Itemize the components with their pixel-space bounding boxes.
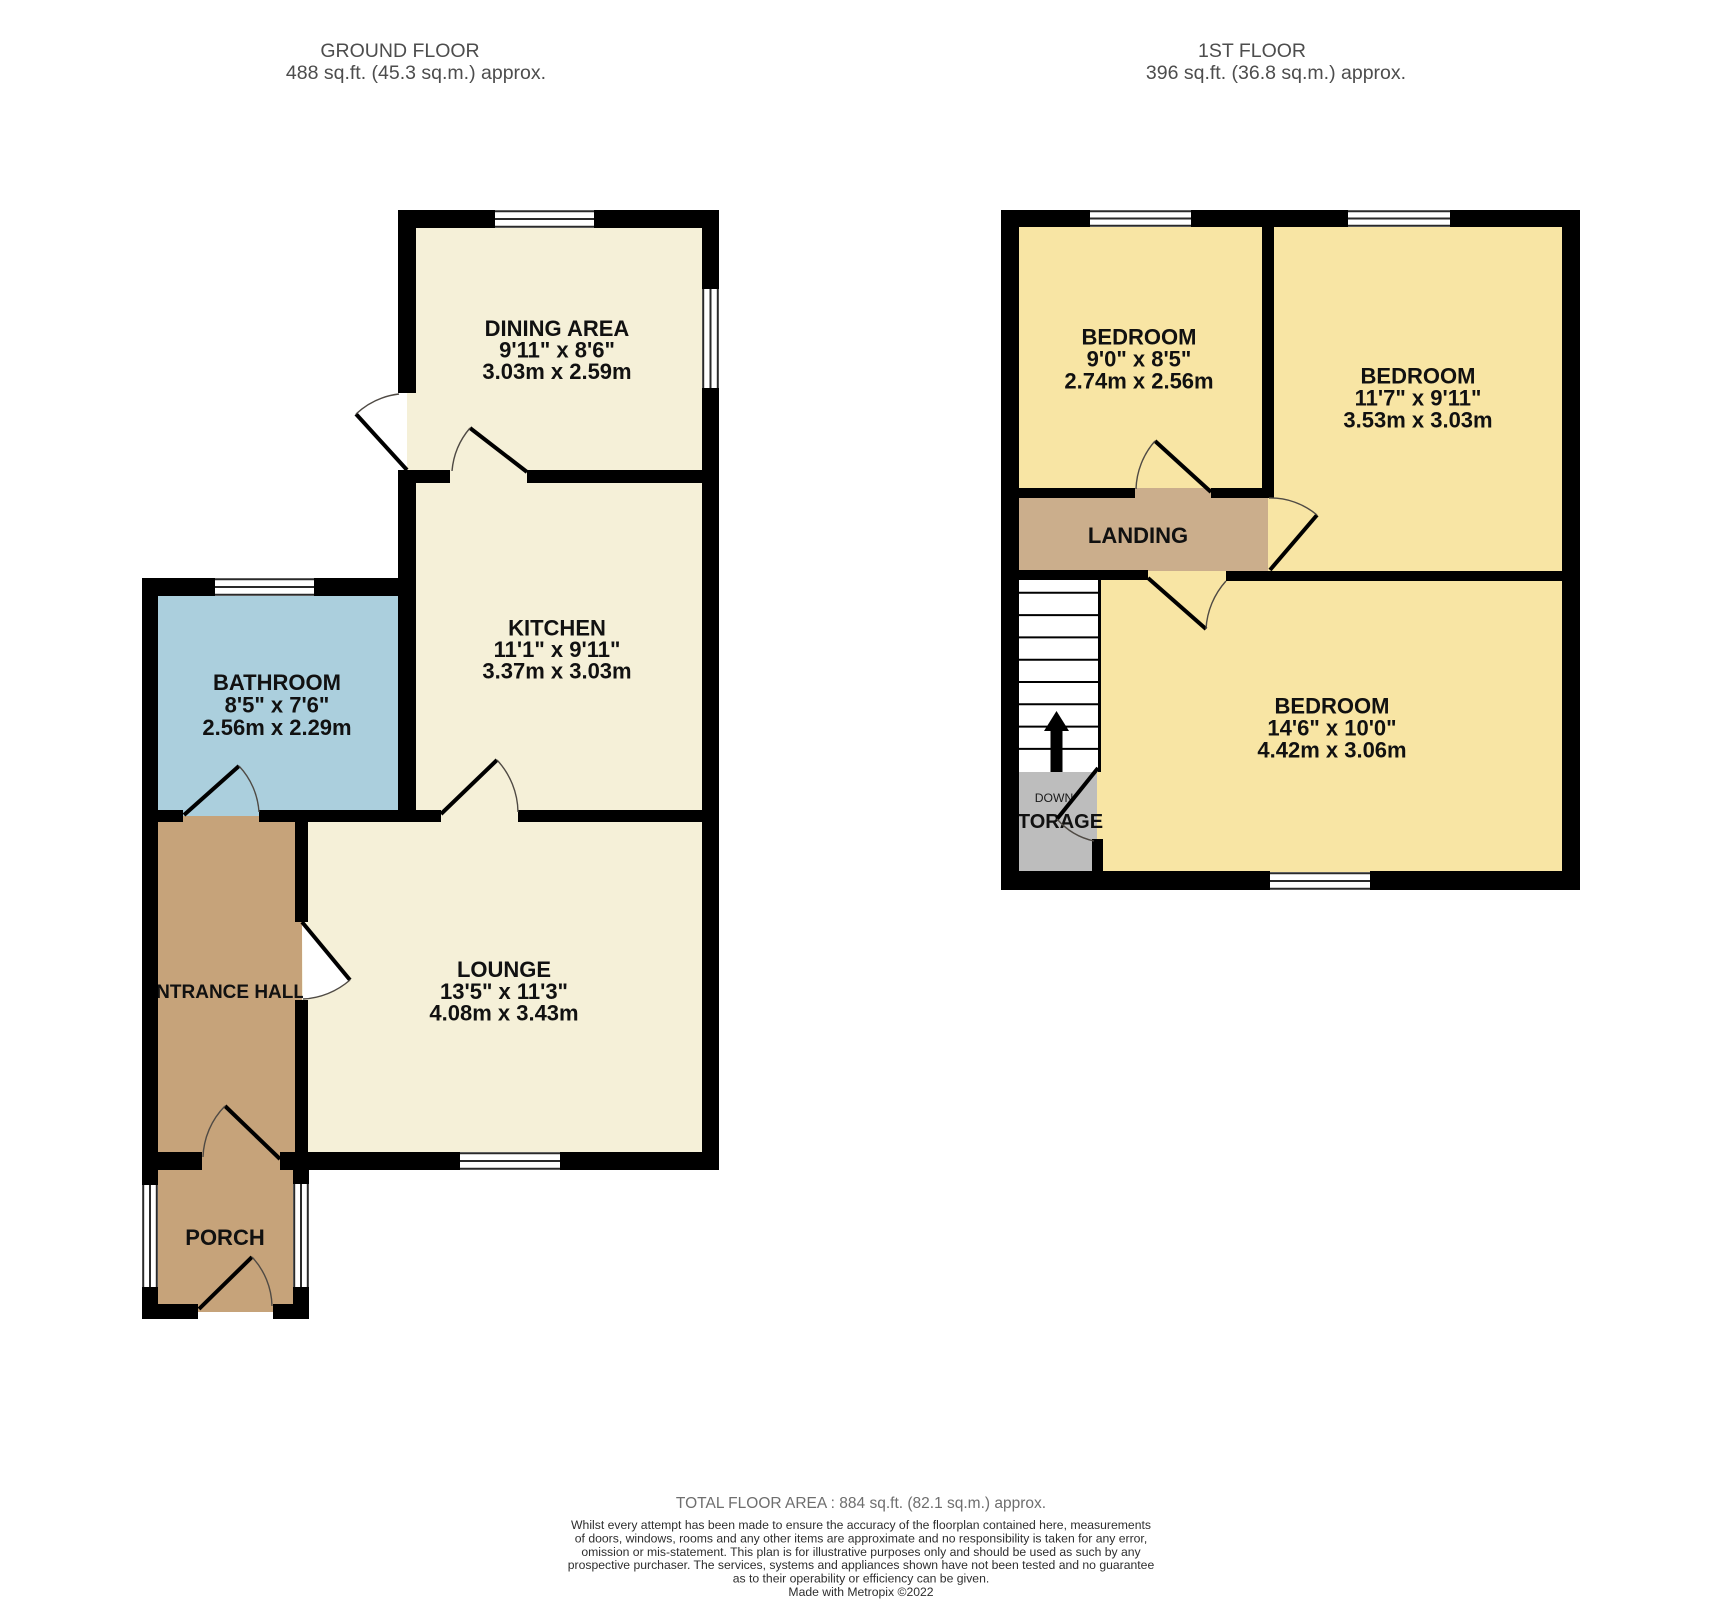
svg-text:2.74m x 2.56m: 2.74m x 2.56m	[1064, 368, 1213, 393]
svg-text:4.42m x 3.06m: 4.42m x 3.06m	[1257, 738, 1406, 763]
svg-text:8'5" x 7'6": 8'5" x 7'6"	[225, 693, 330, 718]
svg-text:prospective purchaser. The ser: prospective purchaser. The services, sys…	[568, 1558, 1155, 1572]
svg-text:Made with Metropix ©2022: Made with Metropix ©2022	[788, 1585, 933, 1599]
svg-text:PORCH: PORCH	[185, 1225, 264, 1250]
svg-text:GROUND FLOOR: GROUND FLOOR	[320, 40, 479, 62]
svg-text:as to their operability or eff: as to their operability or efficiency ca…	[733, 1572, 990, 1586]
svg-text:TOTAL FLOOR AREA : 884 sq.ft.: TOTAL FLOOR AREA : 884 sq.ft. (82.1 sq.m…	[676, 1495, 1046, 1512]
svg-text:of doors, windows, rooms and a: of doors, windows, rooms and any other i…	[575, 1531, 1147, 1545]
svg-text:2.56m x 2.29m: 2.56m x 2.29m	[202, 715, 351, 740]
svg-text:LANDING: LANDING	[1088, 523, 1188, 548]
svg-text:3.37m x 3.03m: 3.37m x 3.03m	[482, 659, 631, 684]
svg-text:BATHROOM: BATHROOM	[213, 670, 341, 695]
svg-text:omission or mis-statement. Thi: omission or mis-statement. This plan is …	[581, 1545, 1141, 1559]
svg-text:3.53m x 3.03m: 3.53m x 3.03m	[1343, 407, 1492, 432]
svg-text:4.08m x 3.43m: 4.08m x 3.43m	[429, 1001, 578, 1026]
svg-text:STORAGE: STORAGE	[1005, 811, 1104, 833]
svg-text:ENTRANCE HALL: ENTRANCE HALL	[144, 982, 306, 1003]
svg-text:488 sq.ft. (45.3 sq.m.) approx: 488 sq.ft. (45.3 sq.m.) approx.	[286, 62, 546, 84]
svg-text:1ST FLOOR: 1ST FLOOR	[1198, 40, 1306, 62]
svg-text:Whilst every attempt has been: Whilst every attempt has been made to en…	[571, 1518, 1151, 1532]
svg-text:3.03m x 2.59m: 3.03m x 2.59m	[482, 359, 631, 384]
svg-text:396 sq.ft. (36.8 sq.m.) approx: 396 sq.ft. (36.8 sq.m.) approx.	[1146, 62, 1406, 84]
